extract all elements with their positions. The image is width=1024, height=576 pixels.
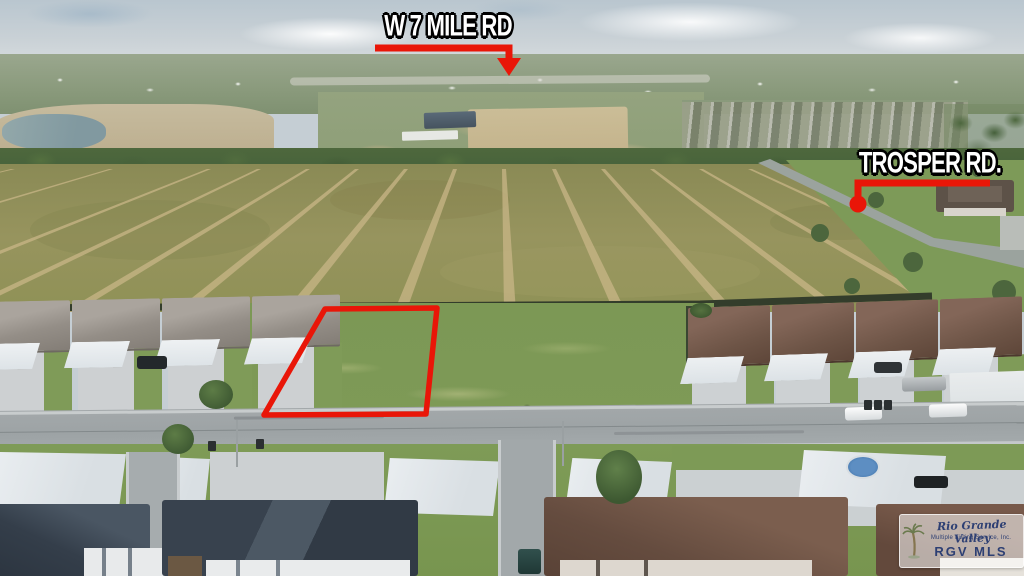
- bush: [690, 303, 712, 318]
- carport-canopy: [0, 452, 126, 506]
- street-parked-car: [518, 549, 541, 574]
- parked-car: [874, 362, 902, 373]
- parked-suv: [902, 376, 946, 392]
- asphalt-patch: [614, 430, 804, 435]
- carport-canopy: [64, 341, 130, 368]
- tree: [596, 450, 642, 504]
- trash-bin: [884, 400, 892, 410]
- trash-bin: [208, 441, 216, 451]
- tree: [162, 424, 194, 454]
- road-label-w7-mile-rd: W 7 MILE RD: [369, 12, 526, 41]
- trash-bin: [256, 439, 264, 449]
- aerial-photo: W 7 MILE RD TROSPER RD. Rio Grande Valle…: [0, 0, 1024, 576]
- street-parked-car: [929, 403, 967, 417]
- carport-canopy: [680, 356, 744, 384]
- watermark-brand-script: Rio Grande Valley: [924, 517, 1021, 546]
- tree: [199, 380, 233, 409]
- parked-car: [137, 356, 167, 369]
- parked-car: [914, 476, 948, 488]
- watermark-brand-abbr: RGV MLS: [922, 544, 1020, 559]
- house-wall: [560, 560, 812, 576]
- carport-canopy: [244, 337, 310, 364]
- street-light-pole: [562, 421, 564, 466]
- watermark-brand-sub: Multiple Listing Service, Inc.: [922, 535, 1020, 541]
- road-label-trosper-rd: TROSPER RD.: [851, 149, 1008, 178]
- house-wall: [206, 560, 410, 576]
- mls-watermark: Rio Grande Valley Multiple Listing Servi…: [899, 514, 1024, 568]
- trash-bin: [874, 400, 882, 410]
- house-unit: [252, 292, 342, 422]
- asphalt-patch: [234, 415, 384, 419]
- wood-fence: [168, 556, 202, 576]
- trash-bin: [864, 400, 872, 410]
- trampoline: [846, 455, 880, 479]
- carport-canopy: [764, 353, 828, 381]
- street-light-pole: [236, 420, 238, 467]
- house-unit: [0, 298, 72, 428]
- asphalt-seam: [0, 422, 1024, 433]
